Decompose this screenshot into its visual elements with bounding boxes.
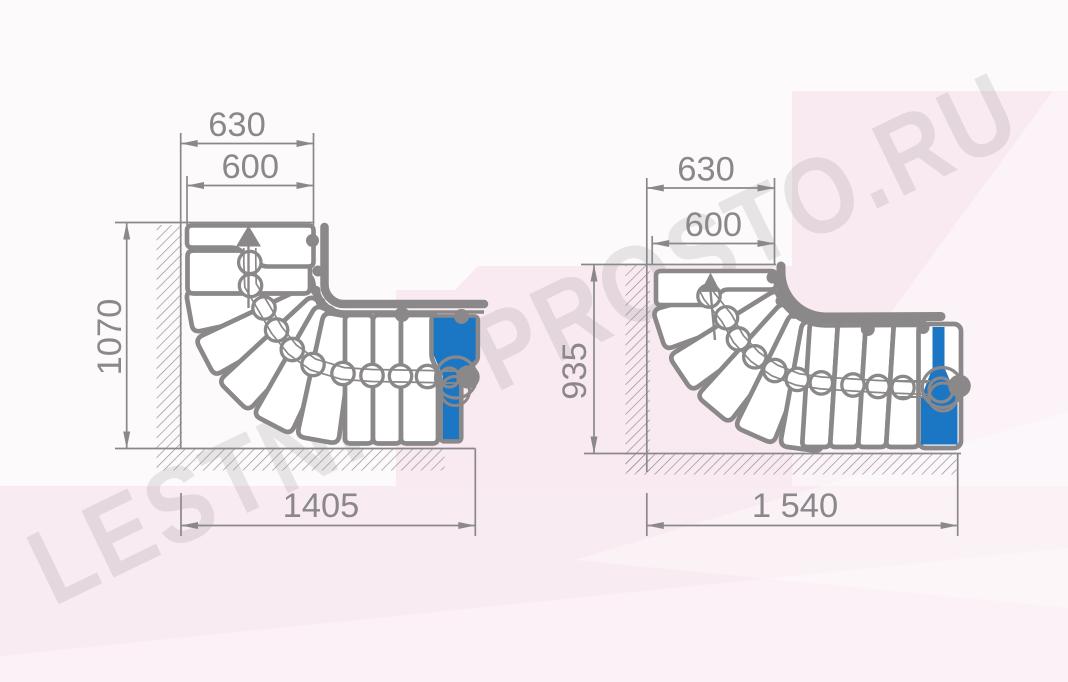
svg-text:1 540: 1 540 xyxy=(752,487,838,525)
svg-text:630: 630 xyxy=(208,106,266,144)
svg-text:935: 935 xyxy=(556,342,594,400)
svg-text:1070: 1070 xyxy=(91,299,129,376)
svg-text:600: 600 xyxy=(685,206,743,244)
svg-text:1405: 1405 xyxy=(283,487,360,525)
svg-text:630: 630 xyxy=(677,151,735,189)
svg-text:600: 600 xyxy=(221,148,279,186)
